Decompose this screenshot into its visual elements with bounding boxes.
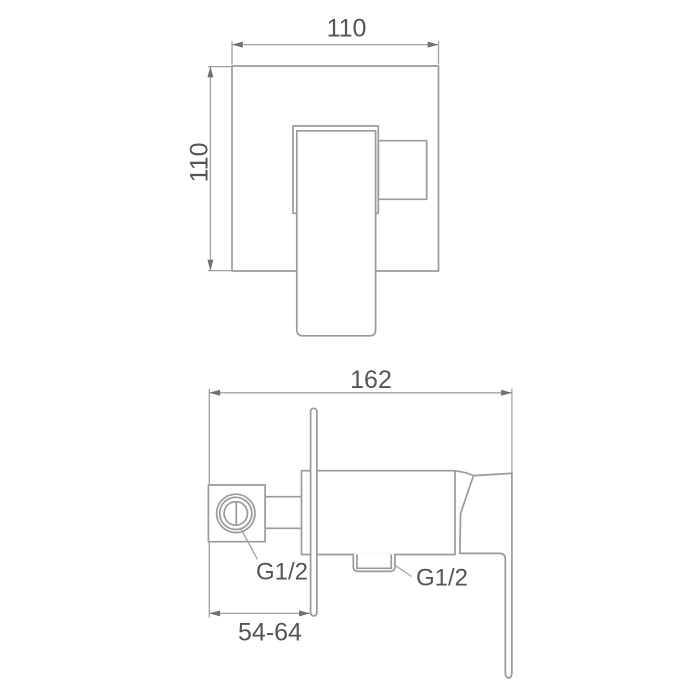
arrowhead-right-icon xyxy=(501,390,512,396)
side-width-label: 162 xyxy=(350,366,392,394)
arrowhead-right-icon xyxy=(299,610,310,616)
wall-plate-edge xyxy=(311,408,317,616)
arrowhead-down-icon xyxy=(207,260,213,271)
side-view: 162 G1/2 G1/2 54-64 xyxy=(208,366,512,678)
arrowhead-left-icon xyxy=(209,390,220,396)
side-outlet-box xyxy=(378,141,426,200)
arrowhead-up-icon xyxy=(207,67,213,78)
technical-drawing-canvas: 110 110 162 xyxy=(0,0,700,700)
front-width-dimension: 110 xyxy=(232,15,439,65)
valve-body xyxy=(302,471,456,555)
arrowhead-right-icon xyxy=(428,42,439,48)
depth-dimension: 54-64 xyxy=(209,610,310,646)
lever-joint-curve xyxy=(455,471,474,476)
depth-label: 54-64 xyxy=(238,619,302,647)
arrowhead-left-icon xyxy=(209,610,220,616)
inlet-thread-label: G1/2 xyxy=(256,559,308,586)
handle-lever xyxy=(297,131,376,336)
front-width-label: 110 xyxy=(327,15,367,43)
front-view: 110 110 xyxy=(186,15,439,336)
outlet-thread-label: G1/2 xyxy=(416,565,468,592)
front-height-label: 110 xyxy=(186,142,214,182)
arrowhead-left-icon xyxy=(232,42,243,48)
front-height-dimension: 110 xyxy=(186,67,231,271)
leader-line-outlet xyxy=(394,565,412,577)
